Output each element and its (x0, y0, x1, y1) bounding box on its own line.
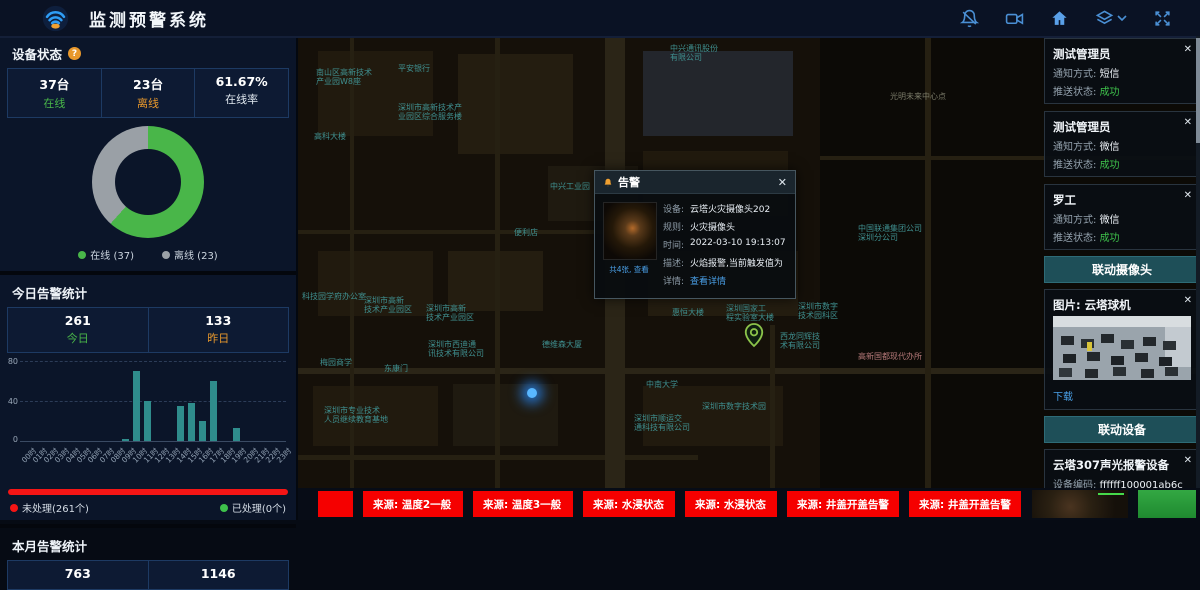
legend-label: 未处理(261个) (22, 500, 89, 515)
stat-box: 37台 在线 (8, 69, 102, 117)
legend-label: 离线 (23) (174, 247, 218, 262)
stat-box: 23台 离线 (102, 69, 196, 117)
legend-dot (10, 504, 18, 512)
card-field-row: 推送状态: 成功 (1053, 156, 1191, 171)
stat-label: 今日 (8, 330, 148, 346)
home-icon[interactable] (1050, 9, 1069, 28)
close-icon[interactable]: ✕ (1184, 44, 1192, 55)
stat-label: 在线率 (195, 91, 288, 107)
section-title-text: 设备状态 (12, 44, 62, 63)
processing-legend: 未处理(261个) 已处理(0个) (10, 500, 286, 515)
notify-card-title: 罗工 (1053, 192, 1191, 208)
field-label: 设备编码: (1053, 480, 1100, 488)
bar-slot (164, 361, 175, 441)
section-title-text: 本月告警统计 (12, 536, 87, 555)
bar-slot (230, 361, 241, 441)
fire-snapshot-image[interactable] (603, 202, 657, 260)
map-place-label: 中兴工业园 (550, 182, 590, 191)
camera-card-title: 图片: 云塔球机 (1053, 297, 1191, 313)
device-status-stats: 37台 在线 23台 离线 61.67% 在线率 (7, 68, 289, 118)
photo-person (1087, 342, 1092, 351)
card-field-row: 设备编码: ffffff100001ab6c (1053, 476, 1191, 488)
alert-snapshot[interactable]: 共4张, 查看 (603, 202, 655, 292)
alert-source-chip[interactable]: 来源: 井盖开盖告警 (909, 491, 1021, 517)
device-donut (92, 126, 204, 238)
stat-box: 61.67% 在线率 (195, 69, 288, 117)
bar-slot (208, 361, 219, 441)
bar-slot (86, 361, 97, 441)
close-icon[interactable]: ✕ (1184, 295, 1192, 306)
snapshot-caption-link[interactable]: 共4张, 查看 (603, 264, 655, 275)
alert-source-chip[interactable]: 来源: 水浸状态 (685, 491, 777, 517)
alert-popup-body: 共4张, 查看 设备: 云塔火灾摄像头202 规则: 火灾摄像头 时间: 202… (595, 194, 795, 298)
close-icon[interactable]: ✕ (778, 176, 787, 189)
field-value: 火焰报警,当前触发值为 (690, 256, 783, 269)
handled-legend: 已处理(0个) (220, 500, 286, 515)
notify-card-title: 测试管理员 (1053, 119, 1191, 135)
map-place-label: 深圳市数字技术园 (702, 402, 766, 411)
alert-chips: 来源: 温度2一般来源: 温度3一般来源: 水浸状态来源: 水浸状态来源: 井盖… (318, 491, 1021, 517)
alert-popup: 告警 ✕ 共4张, 查看 设备: 云塔火灾摄像头202 规则: 火灾摄像头 时间… (594, 170, 796, 299)
close-icon[interactable]: ✕ (1184, 190, 1192, 201)
map-building (643, 51, 793, 136)
alert-source-chip[interactable] (318, 491, 353, 517)
field-label: 描述: (663, 256, 690, 269)
bar (144, 401, 151, 441)
alert-popup-title: 告警 (618, 174, 640, 190)
map-place-label: 深圳市高新技术产 业园区综合服务楼 (398, 103, 462, 121)
bottom-alert-bar: 来源: 温度2一般来源: 温度3一般来源: 水浸状态来源: 水浸状态来源: 井盖… (298, 488, 1200, 520)
y-tick: 80 (6, 357, 18, 366)
legend-label: 已处理(0个) (232, 500, 286, 515)
donut-legend: 在线 (37) 离线 (23) (0, 247, 296, 262)
device-status-title: 设备状态 ? (0, 36, 296, 68)
stat-value: 261 (8, 313, 148, 328)
notify-card-title: 测试管理员 (1053, 46, 1191, 62)
map-place-label: 中国联通集团公司 深圳分公司 (858, 224, 922, 242)
section-title-text: 今日告警统计 (12, 283, 87, 302)
map-place-label: 光明未来中心点 (890, 92, 946, 101)
hourly-alert-bar-chart: 80 40 0 00时01时02时03时04时05时06时07时08时09时10… (6, 357, 288, 475)
bar-slot (153, 361, 164, 441)
map-place-label: 深圳市高新 技术产业园区 (364, 296, 412, 314)
x-labels: 00时01时02时03时04时05时06时07时08时09时10时11时12时1… (20, 445, 286, 456)
map-place-label: 梅园商学 (320, 358, 352, 367)
bar (188, 403, 195, 441)
map-place-label: 德维森大厦 (542, 340, 582, 349)
field-label: 推送状态: (1053, 160, 1100, 171)
field-label: 推送状态: (1053, 87, 1100, 98)
today-alert-stats: 261 今日 133 昨日 (7, 307, 289, 353)
field-label: 推送状态: (1053, 233, 1100, 244)
stat-label: 在线 (8, 95, 101, 111)
map-place-label: 东康门 (384, 364, 408, 373)
close-icon[interactable]: ✕ (1184, 455, 1192, 466)
legend-label: 在线 (37) (90, 247, 134, 262)
linked-devices-header: 联动设备 (1044, 416, 1200, 443)
alert-video-thumbnail[interactable] (1032, 490, 1128, 518)
alert-source-chip[interactable]: 来源: 温度2一般 (363, 491, 463, 517)
field-label: 设备: (663, 202, 690, 215)
bar-slot (242, 361, 253, 441)
bar-slot (42, 361, 53, 441)
bar (177, 406, 184, 441)
card-field-row: 通知方式: 微信 (1053, 211, 1191, 226)
fullscreen-icon[interactable] (1153, 9, 1172, 28)
alert-field-row: 规则: 火灾摄像头 (663, 220, 787, 233)
map-place-label: 深圳市数字 技术园科区 (798, 302, 838, 320)
device-cards: ✕ 云塔307声光报警设备 设备编码: ffffff100001ab6c调用服务… (1044, 449, 1200, 488)
device-card-title: 云塔307声光报警设备 (1053, 457, 1191, 473)
card-field-row: 推送状态: 成功 (1053, 83, 1191, 98)
bar-slot (186, 361, 197, 441)
map-building (453, 384, 558, 446)
stat-box: 133 昨日 (149, 308, 289, 352)
video-camera-icon[interactable] (1005, 9, 1024, 28)
stat-value: 61.67% (195, 74, 288, 89)
notify-card-fields: 通知方式: 微信推送状态: 成功 (1053, 138, 1191, 171)
bar-slot (197, 361, 208, 441)
stat-label: 离线 (102, 95, 195, 111)
map-road (298, 230, 605, 234)
alert-popup-header: 告警 ✕ (595, 171, 795, 194)
map-road (925, 36, 931, 520)
y-tick: 40 (6, 397, 18, 406)
alarm-bell-icon (603, 177, 613, 188)
legend-item: 离线 (23) (162, 247, 218, 262)
bar-slot (275, 361, 286, 441)
legend-dot (162, 251, 170, 259)
map-place-label: 高新国都现代办所 (858, 352, 922, 361)
map-place-label: 中兴通讯股份 有限公司 (670, 44, 718, 62)
bar (199, 421, 206, 441)
alert-field-row: 详情: 查看详情 (663, 274, 787, 287)
notify-card-fields: 通知方式: 短信推送状态: 成功 (1053, 65, 1191, 98)
field-value: 成功 (1100, 160, 1120, 171)
field-value: 成功 (1100, 233, 1120, 244)
bar-slot (109, 361, 120, 441)
bar-slot (64, 361, 75, 441)
map-place-label: 科技园学府办公室 (302, 292, 366, 301)
map-place-label: 中南大学 (646, 380, 678, 389)
map-road (350, 36, 354, 520)
field-value: 微信 (1100, 142, 1120, 153)
legend-dot (78, 251, 86, 259)
device-location-dot[interactable] (527, 388, 537, 398)
map-place-label: 深圳市顺运交 通科技有限公司 (634, 414, 690, 432)
stat-value: 37台 (8, 74, 101, 93)
camera-card: ✕ 图片: 云塔球机 下载 (1044, 289, 1200, 410)
header-icon-group (960, 9, 1172, 28)
legend-item: 在线 (37) (78, 247, 134, 262)
help-icon[interactable]: ? (68, 47, 81, 60)
map-place-label: 惠恒大楼 (672, 308, 704, 317)
field-value: 成功 (1100, 87, 1120, 98)
notify-cards: ✕ 测试管理员 通知方式: 短信推送状态: 成功 ✕ 测试管理员 通知方式: 微… (1044, 38, 1200, 250)
top-header: 监测预警系统 (0, 0, 1200, 38)
photo-window (1053, 316, 1191, 327)
card-field-row: 通知方式: 短信 (1053, 65, 1191, 80)
bar-slot (253, 361, 264, 441)
alert-field-row: 设备: 云塔火灾摄像头202 (663, 202, 787, 215)
device-card-fields: 设备编码: ffffff100001ab6c调用服务: 报警下发结果: 成功 (1053, 476, 1191, 488)
scrollbar-track[interactable] (1196, 36, 1200, 488)
stat-box: 763 (8, 561, 149, 589)
field-label: 详情: (663, 274, 690, 287)
layers-menu[interactable] (1095, 9, 1127, 28)
camera-snapshot-image[interactable] (1053, 316, 1191, 380)
page-title: 监测预警系统 (89, 6, 209, 31)
map-building (458, 54, 573, 154)
map-place-label: 深圳市西迪通 讯技术有限公司 (428, 340, 484, 358)
device-card: ✕ 云塔307声光报警设备 设备编码: ffffff100001ab6c调用服务… (1044, 449, 1200, 488)
bar (210, 381, 217, 441)
field-value: 微信 (1100, 215, 1120, 226)
notify-card: ✕ 测试管理员 通知方式: 短信推送状态: 成功 (1044, 38, 1200, 104)
field-value[interactable]: 查看详情 (690, 274, 726, 287)
bar-slot (131, 361, 142, 441)
field-value: 短信 (1100, 69, 1120, 80)
stat-value: 763 (8, 566, 148, 581)
photo-window-right (1165, 327, 1191, 367)
bell-off-icon[interactable] (960, 9, 979, 28)
photo-desks (1061, 336, 1074, 345)
bar-slot (142, 361, 153, 441)
field-value: 2022-03-10 19:13:07 (690, 238, 786, 251)
alert-source-chip[interactable]: 来源: 水浸状态 (583, 491, 675, 517)
donut-chart-wrap (0, 126, 296, 238)
bar-slot (31, 361, 42, 441)
unhandled-legend: 未处理(261个) (10, 500, 89, 515)
bars (20, 361, 286, 441)
bar-slot (264, 361, 275, 441)
alert-field-row: 描述: 火焰报警,当前触发值为 (663, 256, 787, 269)
unhandled-progress-bar (8, 489, 288, 495)
bar (122, 439, 129, 441)
map-place-label: 便利店 (514, 228, 538, 237)
alert-source-chip[interactable]: 来源: 温度3一般 (473, 491, 573, 517)
field-value: 云塔火灾摄像头202 (690, 202, 770, 215)
stat-value: 1146 (149, 566, 289, 581)
field-label: 通知方式: (1053, 142, 1100, 153)
map-road (495, 36, 500, 520)
field-label: 时间: (663, 238, 690, 251)
card-field-row: 通知方式: 微信 (1053, 138, 1191, 153)
stat-label: 昨日 (149, 330, 289, 346)
alert-source-chip[interactable]: 来源: 井盖开盖告警 (787, 491, 899, 517)
bar-slot (175, 361, 186, 441)
left-sidebar: 设备状态 ? 37台 在线 23台 离线 61.67% 在线率 在线 (37) … (0, 36, 298, 520)
right-sidebar: ✕ 测试管理员 通知方式: 短信推送状态: 成功 ✕ 测试管理员 通知方式: 微… (1040, 36, 1200, 488)
card-field-row: 推送状态: 成功 (1053, 229, 1191, 244)
field-label: 规则: (663, 220, 690, 233)
layers-icon (1095, 9, 1114, 28)
today-alerts-title: 今日告警统计 (0, 275, 296, 307)
chevron-down-icon (1117, 14, 1127, 22)
stat-box: 261 今日 (8, 308, 149, 352)
bar-slot (219, 361, 230, 441)
stat-value: 23台 (102, 74, 195, 93)
map-place-label: 高科大楼 (314, 132, 346, 141)
linked-cameras-header: 联动摄像头 (1044, 256, 1200, 283)
green-video-thumbnail[interactable] (1138, 490, 1196, 518)
map-place-label: 深圳市高新 技术产业园区 (426, 304, 474, 322)
field-label: 通知方式: (1053, 215, 1100, 226)
bar-slot (53, 361, 64, 441)
bar-slot (98, 361, 109, 441)
legend-dot (220, 504, 228, 512)
alert-field-row: 时间: 2022-03-10 19:13:07 (663, 238, 787, 251)
bar (133, 371, 140, 441)
stat-value: 133 (149, 313, 289, 328)
map-place-label: 平安银行 (398, 64, 430, 73)
notify-card-fields: 通知方式: 微信推送状态: 成功 (1053, 211, 1191, 244)
notify-card: ✕ 罗工 通知方式: 微信推送状态: 成功 (1044, 184, 1200, 250)
download-link[interactable]: 下载 (1053, 388, 1073, 403)
month-alerts-title: 本月告警统计 (0, 528, 296, 560)
map-place-label: 西龙同辉技 术有限公司 (780, 332, 820, 350)
field-value: 火灾摄像头 (690, 220, 735, 233)
app-logo-icon (42, 5, 69, 32)
field-label: 通知方式: (1053, 69, 1100, 80)
map-place-label: 深圳国家工 程实验室大楼 (726, 304, 774, 322)
close-icon[interactable]: ✕ (1184, 117, 1192, 128)
location-pin-icon[interactable] (743, 322, 765, 348)
map-place-label: 南山区高新技术 产业园W8座 (316, 68, 372, 86)
field-value: ffffff100001ab6c (1100, 480, 1183, 488)
x-axis-line (20, 441, 286, 442)
bar-slot (120, 361, 131, 441)
bar-slot (75, 361, 86, 441)
map-place-label: 深圳市专业技术 人员继续教育基地 (324, 406, 388, 424)
scrollbar-thumb[interactable] (1196, 38, 1200, 143)
bar-slot (20, 361, 31, 441)
bar (233, 428, 240, 441)
notify-card: ✕ 测试管理员 通知方式: 微信推送状态: 成功 (1044, 111, 1200, 177)
alert-fields: 设备: 云塔火灾摄像头202 规则: 火灾摄像头 时间: 2022-03-10 … (663, 202, 787, 292)
month-alert-stats: 763 1146 (7, 560, 289, 590)
y-tick: 0 (6, 435, 18, 444)
stat-box: 1146 (149, 561, 289, 589)
